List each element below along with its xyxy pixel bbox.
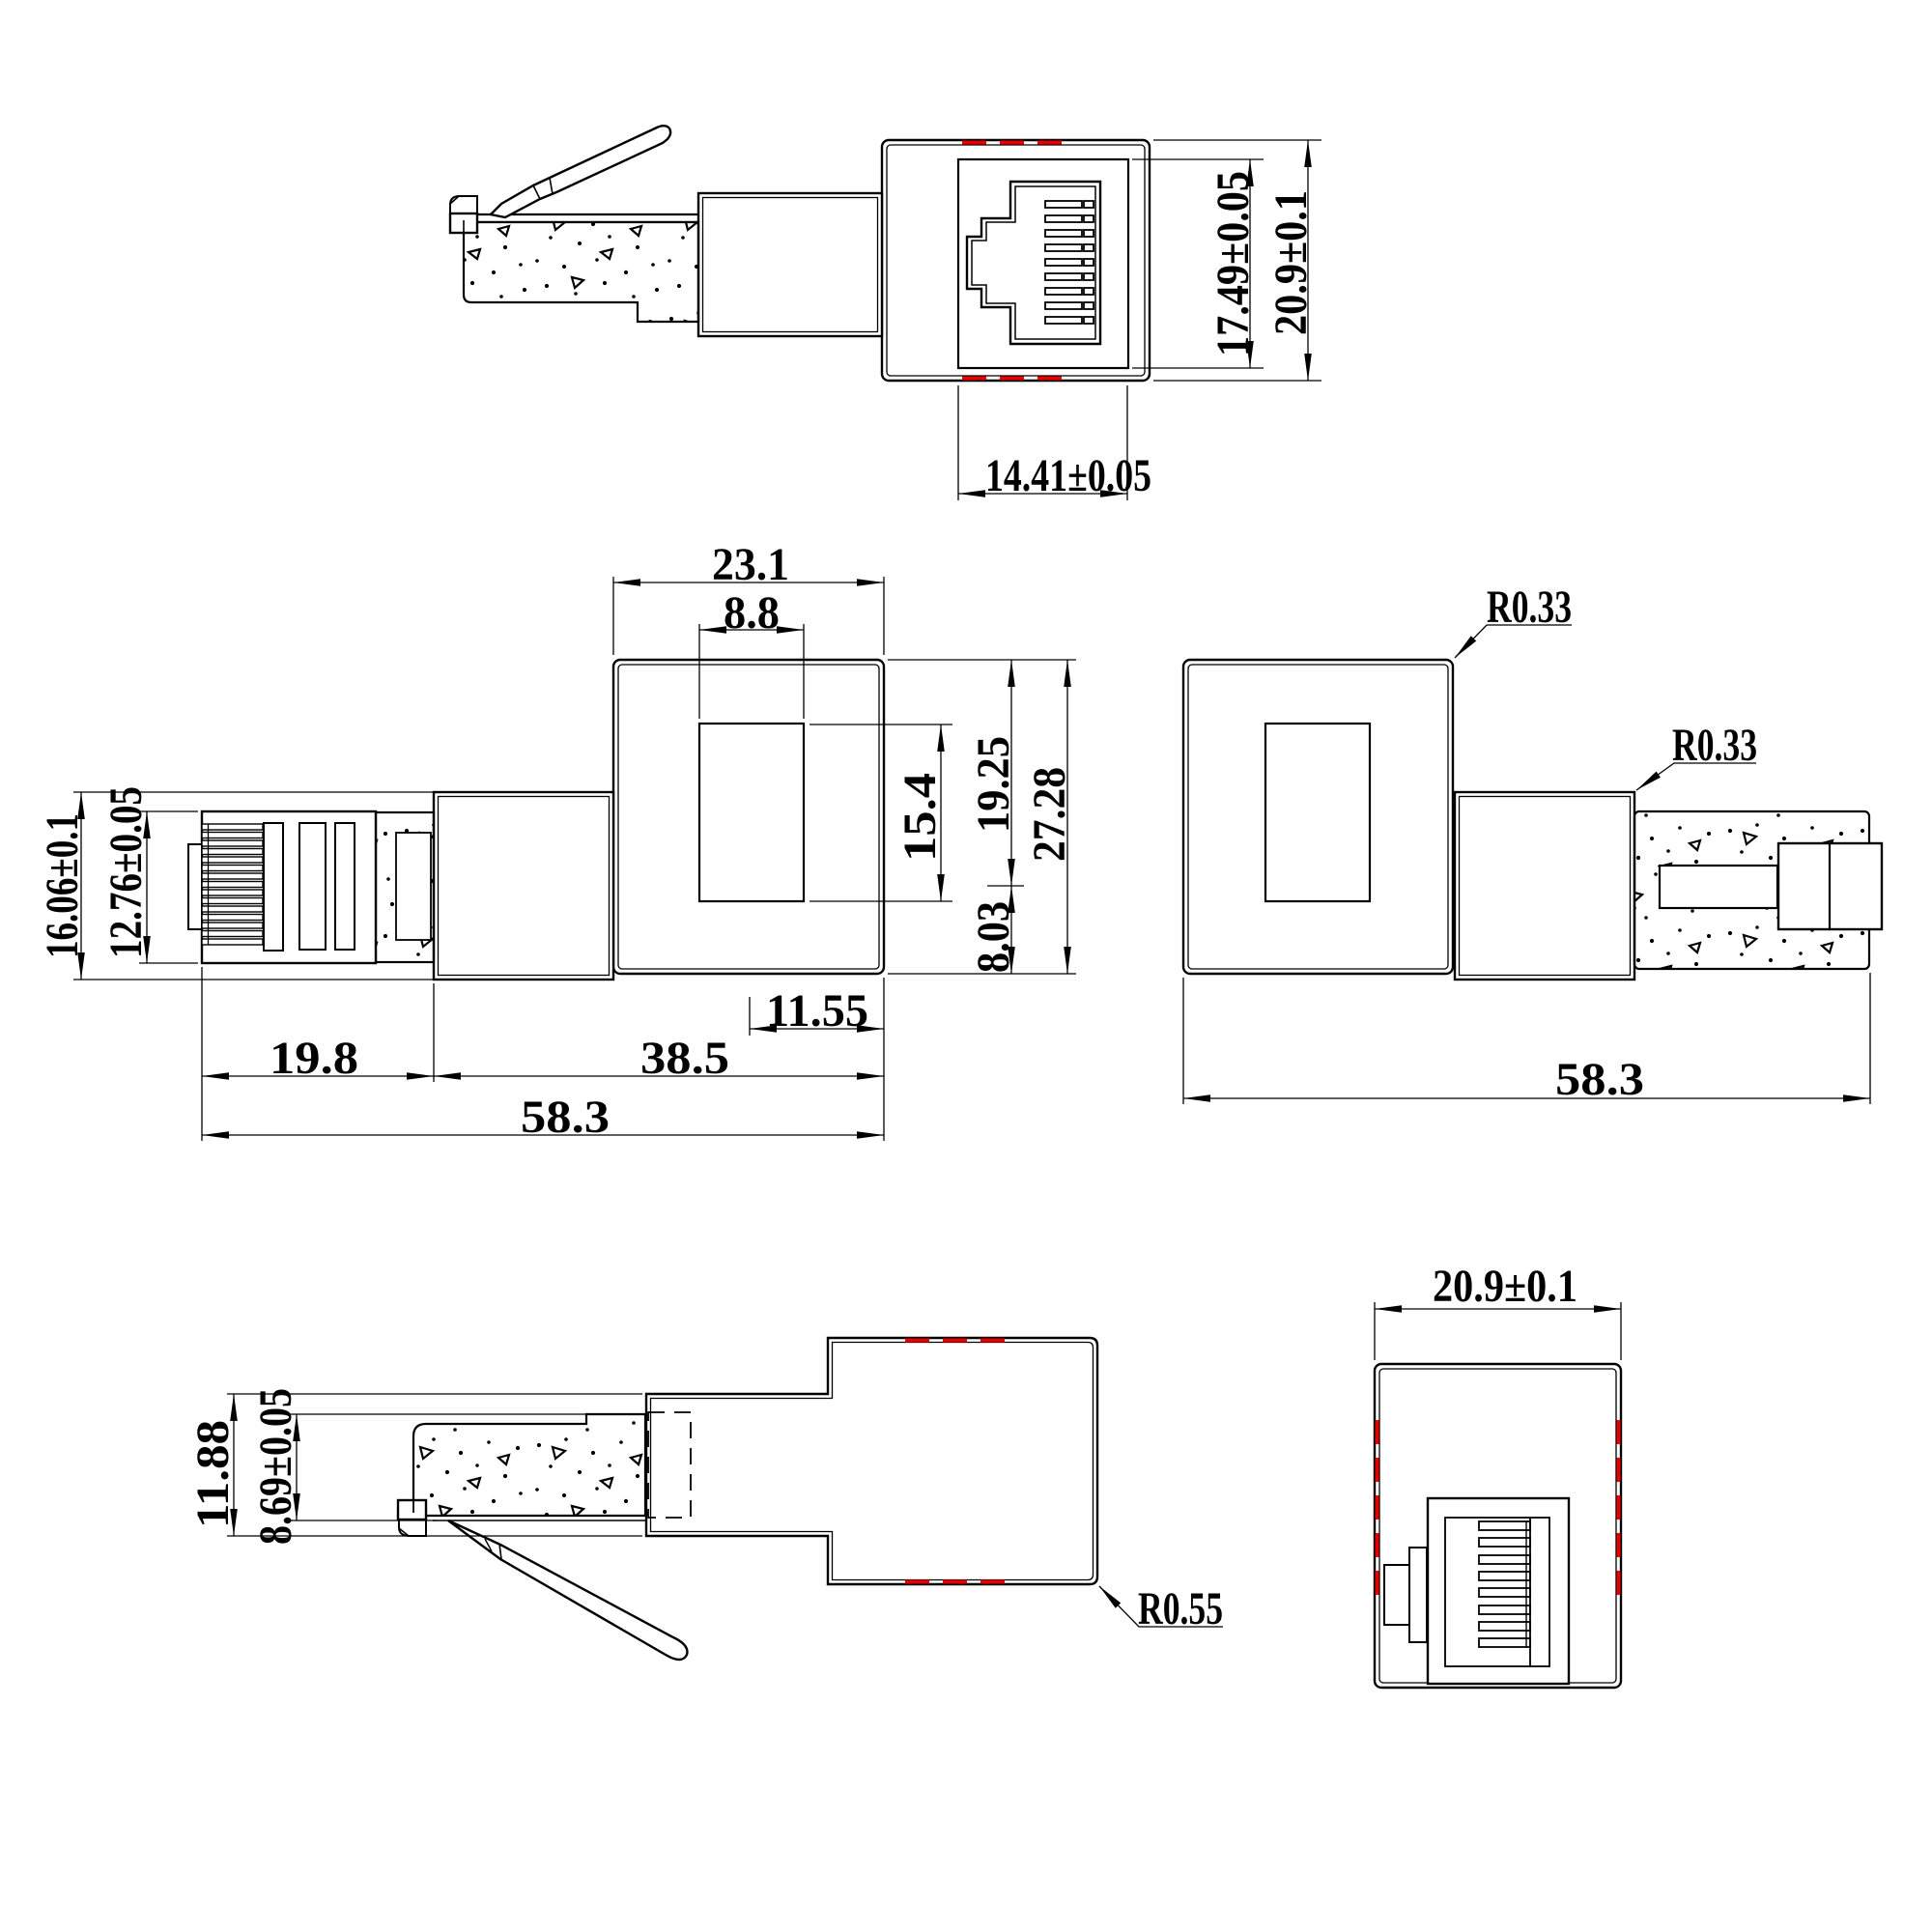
svg-text:27.28: 27.28 (1024, 767, 1075, 862)
svg-text:20.9±0.1: 20.9±0.1 (1265, 190, 1317, 335)
svg-text:58.3: 58.3 (521, 1092, 610, 1143)
svg-text:R0.33: R0.33 (1487, 582, 1572, 633)
svg-text:11.55: 11.55 (766, 985, 868, 1037)
svg-text:8.69±0.05: 8.69±0.05 (250, 1388, 301, 1545)
svg-text:R0.55: R0.55 (1138, 1583, 1223, 1634)
svg-text:15.4: 15.4 (895, 773, 946, 862)
svg-text:12.76±0.05: 12.76±0.05 (100, 786, 152, 958)
svg-text:58.3: 58.3 (1555, 1054, 1644, 1105)
svg-text:19.25: 19.25 (968, 736, 1019, 833)
svg-text:17.49±0.05: 17.49±0.05 (1207, 171, 1259, 356)
svg-text:14.41±0.05: 14.41±0.05 (985, 450, 1151, 501)
svg-text:16.06±0.1: 16.06±0.1 (37, 813, 88, 958)
svg-text:R0.33: R0.33 (1672, 720, 1757, 771)
svg-text:8.8: 8.8 (724, 587, 780, 639)
svg-text:8.03: 8.03 (968, 901, 1019, 973)
svg-text:20.9±0.1: 20.9±0.1 (1433, 1261, 1577, 1312)
svg-text:11.88: 11.88 (187, 1420, 239, 1528)
svg-text:19.8: 19.8 (270, 1033, 358, 1084)
svg-text:23.1: 23.1 (712, 539, 789, 590)
svg-text:38.5: 38.5 (640, 1033, 729, 1084)
